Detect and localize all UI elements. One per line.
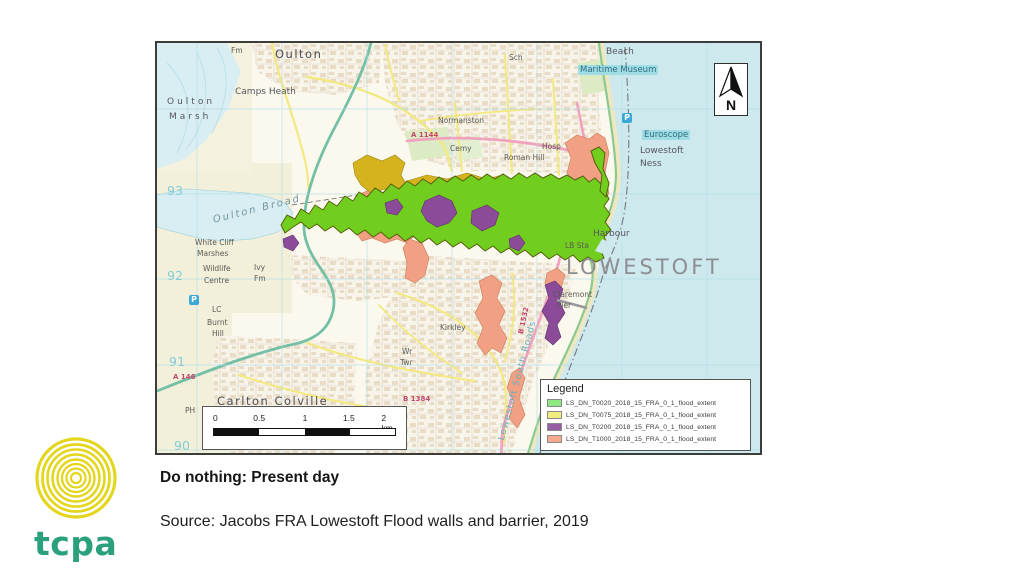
flood-map: OultonFmSchCamps HeathOultonMarshNormans…: [155, 41, 762, 455]
scale-bar-graphic: [213, 428, 396, 436]
slide-source: Source: Jacobs FRA Lowestoft Flood walls…: [160, 513, 589, 531]
legend-title: Legend: [547, 383, 744, 395]
scale-tick: 0: [213, 413, 218, 423]
legend-swatch-salmon: [547, 435, 562, 443]
north-arrow: N: [714, 63, 748, 116]
legend-swatch-purple: [547, 423, 562, 431]
legend-item: LS_DN_T0075_2018_15_FRA_0_1_flood_extent: [547, 409, 744, 421]
legend-label: LS_DN_T0200_2018_15_FRA_0_1_flood_extent: [566, 424, 716, 431]
legend-label: LS_DN_T1000_2018_15_FRA_0_1_flood_extent: [566, 436, 716, 443]
legend-item: LS_DN_T0200_2018_15_FRA_0_1_flood_extent: [547, 421, 744, 433]
tcpa-logo: tcpa: [32, 436, 132, 560]
map-legend: Legend LS_DN_T0020_2018_15_FRA_0_1_flood…: [540, 379, 751, 451]
scale-tick: 0.5: [253, 413, 265, 423]
legend-swatch-yellow: [547, 411, 562, 419]
scale-bar: 0 0.5 1 1.5 2 km: [202, 406, 407, 450]
north-arrow-icon: [716, 64, 746, 100]
tcpa-rings-icon: [32, 436, 120, 520]
legend-item: LS_DN_T0020_2018_15_FRA_0_1_flood_extent: [547, 397, 744, 409]
tcpa-logo-text: tcpa: [34, 527, 132, 560]
scale-tick: 1.5: [343, 413, 355, 423]
slide: OultonFmSchCamps HeathOultonMarshNormans…: [0, 0, 1022, 575]
scale-tick: 1: [303, 413, 308, 423]
legend-label: LS_DN_T0075_2018_15_FRA_0_1_flood_extent: [566, 412, 716, 419]
legend-item: LS_DN_T1000_2018_15_FRA_0_1_flood_extent: [547, 433, 744, 445]
scale-bar-labels: 0 0.5 1 1.5 2 km: [213, 413, 396, 426]
north-label: N: [726, 97, 736, 113]
legend-label: LS_DN_T0020_2018_15_FRA_0_1_flood_extent: [566, 400, 716, 407]
legend-swatch-green: [547, 399, 562, 407]
slide-caption: Do nothing: Present day: [160, 469, 339, 487]
